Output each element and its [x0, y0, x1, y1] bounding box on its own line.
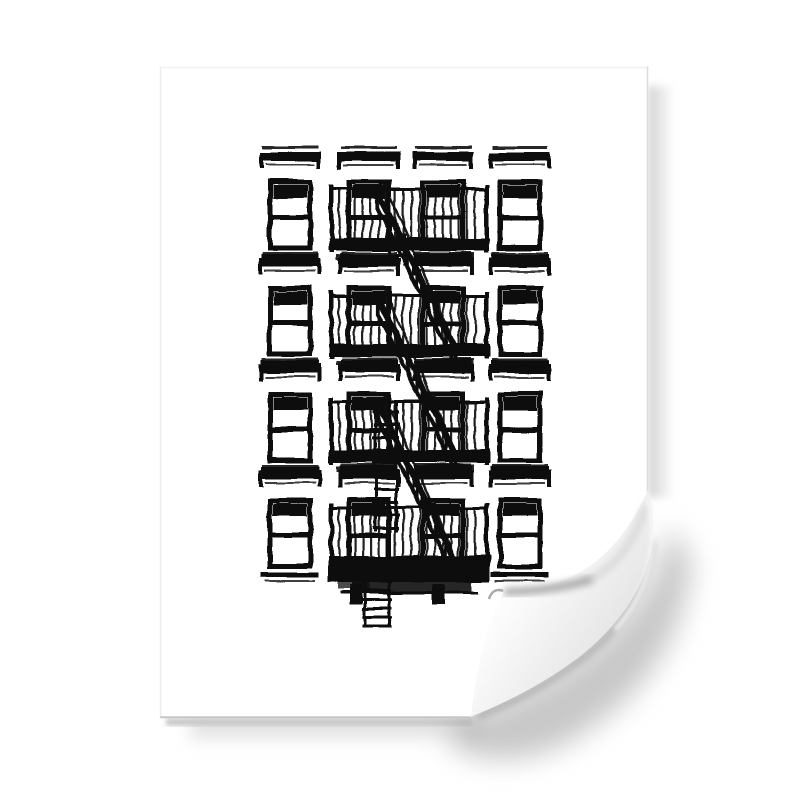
ink-shape	[265, 164, 315, 166]
ink-shape	[259, 258, 321, 267]
ink-shape	[466, 191, 468, 238]
ink-shape	[418, 482, 468, 484]
ink-shape	[336, 467, 394, 472]
ink-shape	[363, 580, 392, 583]
ink-shape	[470, 161, 474, 169]
ink-shape	[396, 161, 400, 169]
ink-shape	[492, 464, 548, 467]
ink-shape	[418, 403, 420, 450]
ink-shape	[338, 191, 340, 238]
ink-shape	[396, 267, 400, 275]
ink-shape	[265, 376, 315, 378]
ink-shape	[412, 152, 474, 161]
product-image: Black and white print of a New York City…	[0, 0, 800, 800]
ink-shape	[458, 403, 460, 450]
ink-shape	[346, 297, 348, 344]
ink-shape	[273, 185, 307, 198]
ink-shape	[418, 297, 420, 344]
ink-shape	[262, 252, 318, 255]
ink-shape	[492, 358, 548, 361]
ink-shape	[273, 291, 307, 304]
ink-shape	[466, 297, 468, 344]
ink-shape	[458, 509, 460, 556]
ink-shape	[491, 572, 549, 577]
ink-shape	[273, 503, 307, 516]
ink-shape	[458, 297, 460, 344]
ink-shape	[495, 164, 545, 166]
ink-shape	[474, 297, 476, 344]
ink-shape	[370, 403, 372, 450]
ink-shape	[489, 258, 551, 267]
ink-shape	[373, 462, 399, 465]
ink-shape	[332, 400, 486, 403]
ink-shape	[332, 188, 486, 191]
ink-shape	[503, 397, 537, 410]
ink-shape	[547, 161, 551, 169]
ink-shape	[265, 270, 315, 272]
ink-shape	[338, 161, 342, 169]
ink-shape	[344, 376, 394, 378]
ink-shape	[362, 403, 364, 450]
ink-shape	[354, 191, 356, 238]
ink-shape	[363, 607, 392, 610]
ink-shape	[332, 506, 486, 509]
ink-shape	[499, 427, 541, 432]
ink-shape	[259, 364, 321, 373]
ink-shape	[362, 509, 364, 556]
ink-shape	[373, 514, 399, 517]
ink-shape	[338, 267, 342, 275]
ink-shape	[363, 598, 392, 601]
ink-shape	[402, 191, 404, 238]
ink-shape	[373, 423, 399, 426]
ink-shape	[470, 373, 474, 381]
ink-shape	[466, 509, 468, 556]
ink-shape	[489, 479, 493, 487]
ink-shape	[259, 267, 263, 275]
ink-shape	[373, 410, 399, 413]
ink-shape	[547, 479, 551, 487]
ink-shape	[370, 297, 372, 344]
ink-shape	[474, 403, 476, 450]
ink-shape	[499, 215, 541, 220]
ink-shape	[495, 270, 545, 272]
ink-shape	[341, 146, 397, 149]
ink-shape	[499, 533, 541, 538]
ink-shape	[489, 161, 493, 169]
ink-shape	[341, 358, 397, 361]
ink-shape	[503, 291, 537, 304]
ink-shape	[273, 397, 307, 410]
ink-shape	[265, 482, 315, 484]
ink-shape	[410, 403, 412, 450]
ink-shape	[450, 191, 452, 238]
ink-shape	[424, 253, 474, 259]
ink-shape	[259, 470, 321, 479]
ink-shape	[434, 191, 436, 238]
ink-shape	[338, 509, 340, 556]
ink-shape	[336, 361, 394, 366]
ink-shape	[415, 146, 471, 149]
ink-shape	[370, 191, 372, 238]
ink-shape	[344, 482, 394, 484]
ink-shape	[458, 191, 460, 238]
ink-shape	[492, 252, 548, 255]
ink-shape	[373, 436, 399, 439]
ink-shape	[418, 509, 420, 556]
ink-shape	[489, 152, 551, 161]
ink-shape	[373, 475, 399, 478]
ink-shape	[338, 479, 342, 487]
ink-shape	[470, 267, 474, 275]
ink-shape	[412, 161, 416, 169]
ink-shape	[370, 509, 372, 556]
ink-shape	[344, 164, 394, 166]
ink-shape	[442, 191, 444, 238]
ink-shape	[317, 161, 321, 169]
ink-shape	[336, 255, 394, 260]
ink-shape	[470, 479, 474, 487]
ink-shape	[402, 509, 404, 556]
ink-shape	[338, 297, 340, 344]
ink-shape	[373, 527, 399, 530]
ink-shape	[489, 267, 493, 275]
ink-shape	[503, 503, 537, 516]
ink-shape	[354, 297, 356, 344]
ink-shape	[426, 191, 428, 238]
ink-shape	[338, 403, 340, 450]
ink-shape	[387, 254, 407, 257]
poster-photo: Black and white print of a New York City…	[0, 0, 800, 800]
ink-shape	[495, 482, 545, 484]
ink-shape	[259, 161, 263, 169]
ink-shape	[489, 364, 551, 373]
ink-shape	[410, 297, 412, 344]
ink-shape	[354, 509, 356, 556]
ink-shape	[410, 509, 412, 556]
ink-shape	[346, 509, 348, 556]
ink-shape	[402, 403, 404, 450]
ink-shape	[424, 359, 474, 365]
ink-shape	[338, 373, 342, 381]
ink-shape	[362, 297, 364, 344]
ink-shape	[259, 152, 321, 161]
ink-shape	[346, 403, 348, 450]
ink-shape	[332, 294, 486, 297]
ink-shape	[338, 152, 400, 161]
ink-shape	[402, 297, 404, 344]
ink-shape	[474, 509, 476, 556]
ink-shape	[363, 625, 392, 628]
ink-shape	[418, 164, 468, 166]
ink-shape	[396, 373, 400, 381]
ink-shape	[363, 589, 392, 592]
ink-shape	[373, 488, 399, 491]
ink-shape	[317, 373, 321, 381]
ink-shape	[424, 465, 474, 471]
ink-shape	[418, 270, 468, 272]
ink-shape	[346, 191, 348, 238]
ink-shape	[387, 242, 407, 245]
ink-shape	[373, 449, 399, 452]
ink-shape	[341, 591, 479, 594]
ink-shape	[374, 402, 377, 532]
ink-shape	[317, 479, 321, 487]
ink-shape	[489, 373, 493, 381]
bottom-soft-shadow	[190, 718, 482, 746]
ink-shape	[265, 580, 315, 582]
right-edge-shadow	[648, 86, 672, 498]
ink-shape	[403, 234, 406, 266]
ink-shape	[344, 270, 394, 272]
ink-shape	[395, 402, 398, 532]
ink-shape	[495, 580, 545, 582]
ink-shape	[363, 616, 392, 619]
ink-shape	[474, 191, 476, 238]
ink-shape	[269, 427, 311, 432]
ink-shape	[503, 185, 537, 198]
ink-shape	[466, 403, 468, 450]
ink-shape	[547, 373, 551, 381]
ink-shape	[317, 267, 321, 275]
ink-shape	[388, 234, 391, 266]
ink-shape	[354, 403, 356, 450]
ink-shape	[499, 321, 541, 326]
ink-shape	[262, 358, 318, 361]
ink-shape	[410, 191, 412, 238]
ink-shape	[259, 373, 263, 381]
ink-shape	[547, 267, 551, 275]
ink-shape	[269, 215, 311, 220]
ink-shape	[259, 479, 263, 487]
ink-shape	[262, 464, 318, 467]
ink-shape	[418, 191, 420, 238]
ink-shape	[373, 501, 399, 504]
ink-shape	[495, 376, 545, 378]
ink-shape	[492, 146, 548, 149]
ink-shape	[489, 470, 551, 479]
ink-shape	[269, 533, 311, 538]
ink-shape	[418, 376, 468, 378]
ink-shape	[362, 191, 364, 238]
ink-shape	[269, 321, 311, 326]
ink-shape	[262, 146, 318, 149]
ink-shape	[261, 572, 319, 577]
